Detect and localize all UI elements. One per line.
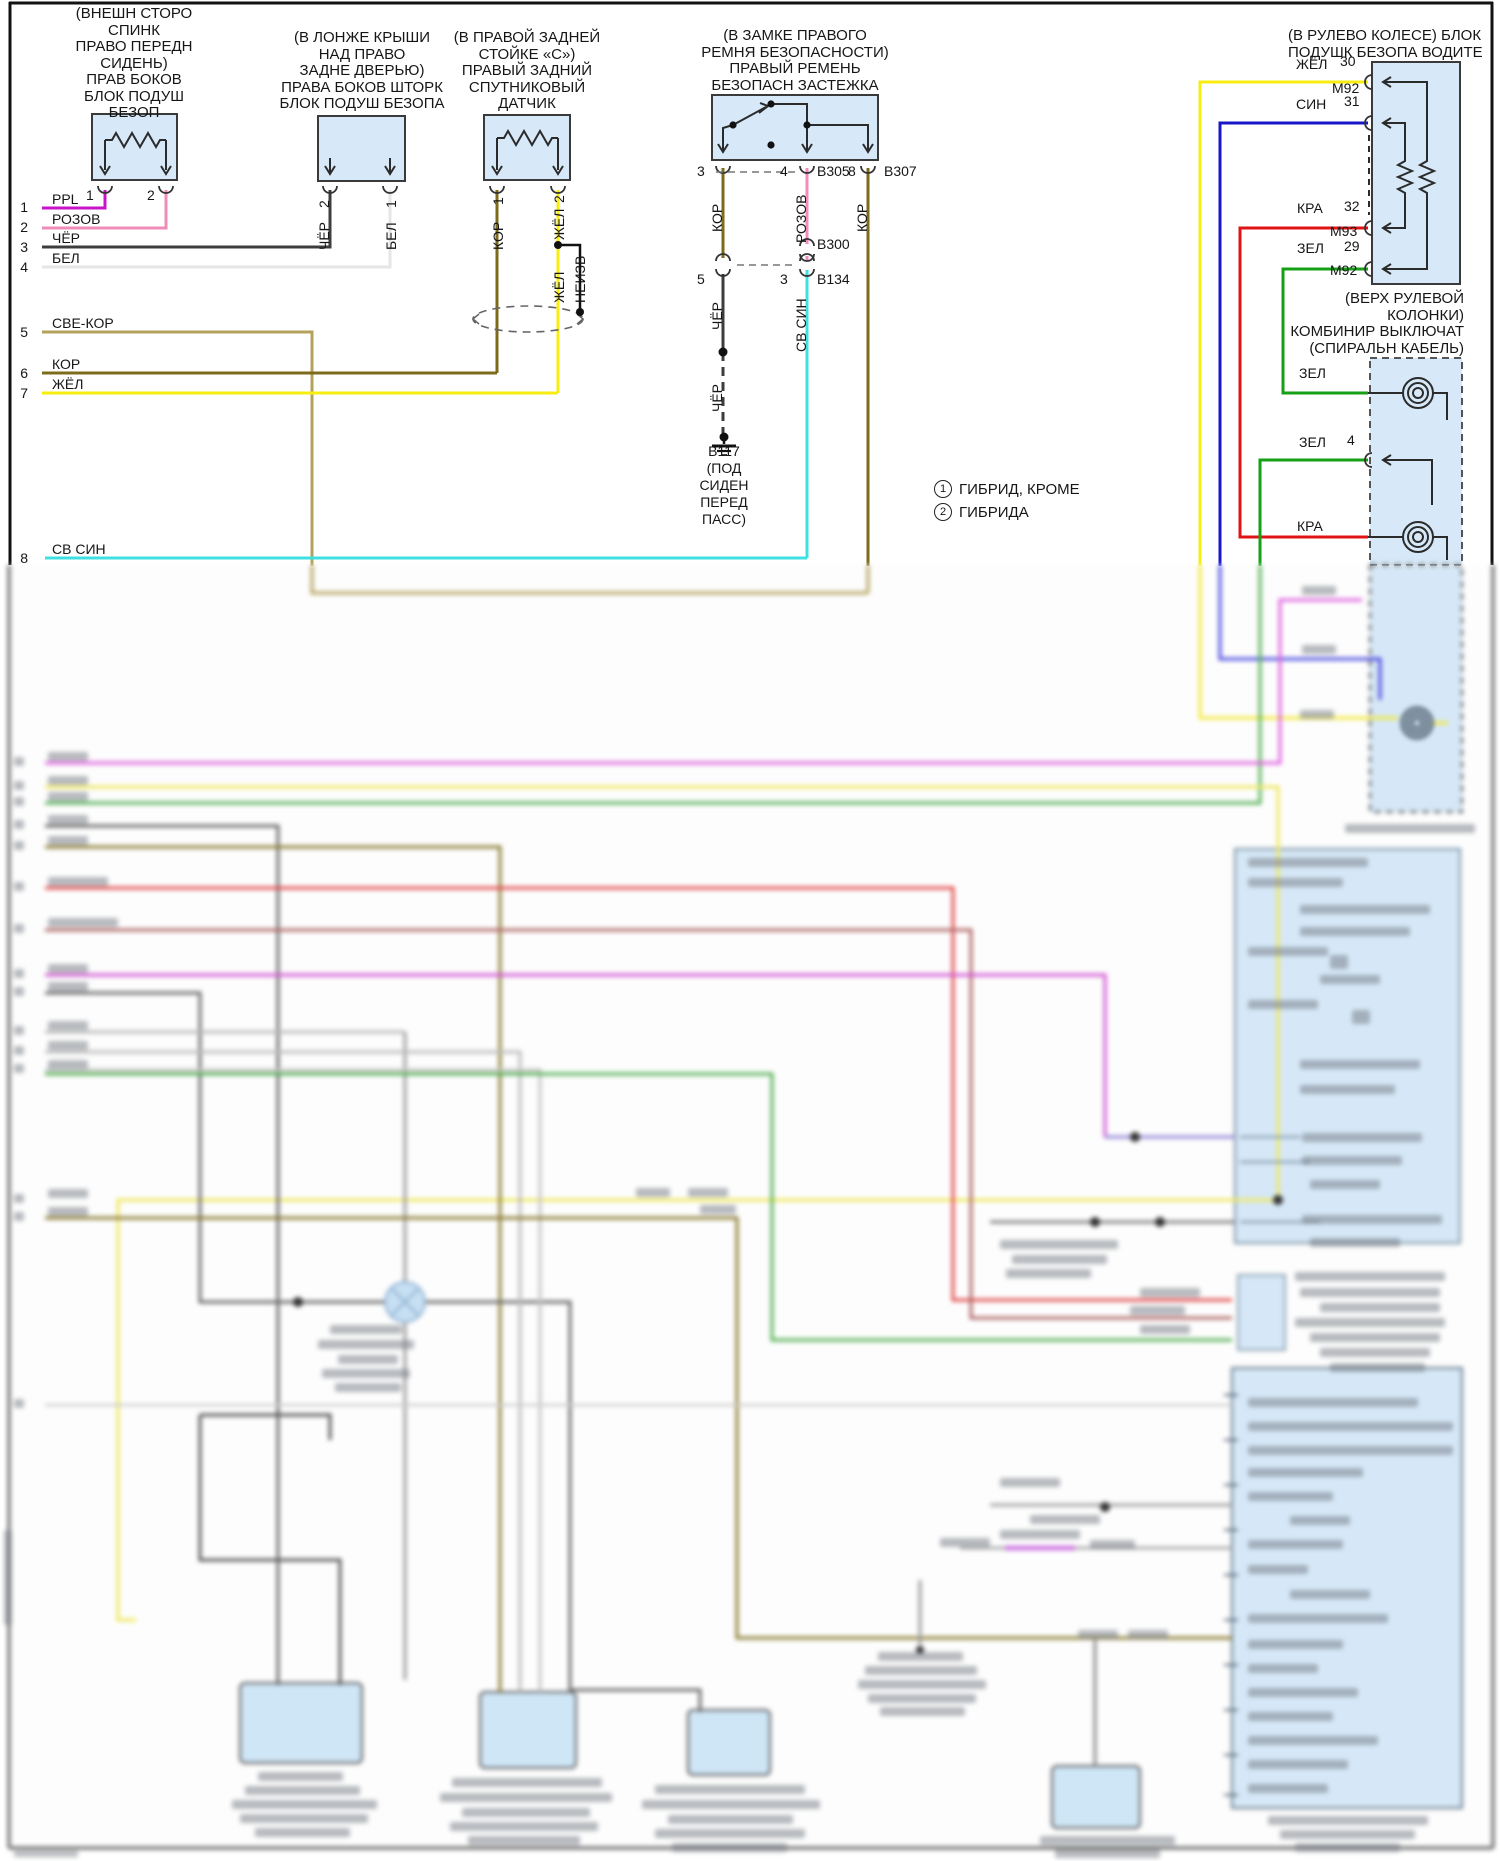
blurred-text-blob <box>1248 1688 1358 1697</box>
blurred-text-blob <box>700 1205 736 1214</box>
legend-item-1: 1 ГИБРИД, КРОМЕ <box>934 480 1080 498</box>
blurred-text-blob <box>14 987 24 996</box>
blurred-text-blob <box>245 1786 360 1795</box>
connector-label: M93 <box>1330 223 1357 239</box>
wire-brown-6 <box>42 190 497 373</box>
blurred-text-blob <box>1248 1614 1388 1623</box>
blurred-text-blob <box>1290 1516 1350 1525</box>
legend-item-2: 2 ГИБРИДА <box>934 503 1029 521</box>
blurred-text-blob <box>878 1652 963 1661</box>
blurred-text-blob <box>462 1808 590 1817</box>
blurred-text-blob <box>1248 1760 1348 1769</box>
blurred-text-blob <box>48 918 118 927</box>
blurred-text-blob <box>1248 1784 1328 1793</box>
wire-label: РОЗОВ <box>52 211 100 227</box>
blurred-text-blob <box>14 757 24 766</box>
blurred-text-blob <box>880 1707 965 1716</box>
wire-color-label: ЧЁР <box>709 302 725 330</box>
wire-number: 7 <box>10 385 28 401</box>
blurred-text-blob <box>14 882 24 891</box>
blurred-text-blob <box>48 982 88 991</box>
blurred-text-blob <box>1330 955 1348 969</box>
blurred-text-blob <box>1078 1630 1118 1639</box>
blurred-text-blob <box>338 1355 398 1364</box>
blurred-text-blob <box>1320 1348 1430 1357</box>
blurred-text-blob <box>668 1815 793 1824</box>
blurred-text-blob <box>322 1369 410 1378</box>
wire-color-label: ЗЕЛ <box>1299 434 1326 450</box>
pass-through-grommet <box>473 306 583 332</box>
wire-color-label: СВ СИН <box>793 298 809 352</box>
blurred-text-blob <box>1012 1255 1107 1264</box>
wire-color-label: НЕИЗВ <box>572 256 588 303</box>
wire-color-label: ЗЕЛ <box>1299 365 1326 381</box>
blurred-text-blob <box>48 815 88 824</box>
pin-label: 2 <box>147 187 155 203</box>
wire-label: БЕЛ <box>52 250 80 266</box>
wire-label: КОР <box>52 356 80 372</box>
blurred-text-blob <box>48 1041 88 1050</box>
wire-green-4 <box>1260 460 1368 566</box>
blurred-text-blob <box>1320 975 1380 984</box>
blurred-text-blob <box>440 1793 612 1802</box>
blurred-text-blob <box>940 1538 990 1547</box>
blurred-text-blob <box>48 1189 88 1198</box>
blurred-text-blob <box>1248 878 1343 887</box>
blurred-text-blob <box>14 924 24 933</box>
wire-label: PPL <box>52 191 78 207</box>
blurred-text-blob <box>14 797 24 806</box>
buckle-title: (В ЗАМКЕ ПРАВОГОРЕМНЯ БЕЗОПАСНОСТИ)ПРАВЫ… <box>695 28 895 94</box>
blurred-text-blob <box>1000 1478 1060 1487</box>
blurred-text-blob <box>1300 927 1410 936</box>
blurred-text-blob <box>1248 1422 1453 1431</box>
blurred-text-blob <box>1310 1238 1400 1247</box>
blurred-text-blob <box>655 1785 805 1794</box>
pin-label: 2 <box>316 200 332 208</box>
blurred-text-blob <box>1345 824 1475 833</box>
blurred-text-blob <box>1030 1515 1100 1524</box>
blurred-text-blob <box>1248 1736 1378 1745</box>
pin-label: 5 <box>697 271 705 287</box>
blurred-text-blob <box>240 1814 368 1823</box>
blurred-text-blob <box>1295 1272 1445 1281</box>
legend-text: ГИБРИД, КРОМЕ <box>959 481 1080 498</box>
wiring-diagram-page: (ВНЕШН СТОРОСПИНКПРАВО ПЕРЕДНСИДЕНЬ)ПРАВ… <box>0 0 1500 1861</box>
blurred-text-blob <box>688 1188 728 1197</box>
pin-label: 32 <box>1344 198 1360 214</box>
pin-label: 4 <box>780 163 788 179</box>
blurred-text-blob <box>255 1828 350 1837</box>
pin-label: 29 <box>1344 238 1360 254</box>
connector-label: B305 <box>817 163 850 179</box>
blurred-text-blob <box>452 1778 602 1787</box>
blurred-text-blob <box>868 1694 976 1703</box>
blurred-text-blob <box>14 1212 24 1221</box>
pin-label: 1 <box>86 187 94 203</box>
wire-number: 6 <box>10 365 28 381</box>
circled-number-icon: 2 <box>934 503 952 521</box>
blurred-text-blob <box>1248 1398 1418 1407</box>
wire-number: 1 <box>10 199 28 215</box>
blurred-text-blob <box>858 1680 986 1689</box>
wire-label: ЧЁР <box>52 230 80 246</box>
blurred-text-blob <box>1302 645 1336 654</box>
driver-airbag-box <box>1372 62 1460 284</box>
blurred-text-blob <box>1302 586 1336 595</box>
blurred-text-blob <box>1000 1240 1118 1249</box>
blurred-text-blob <box>1302 1133 1422 1142</box>
wire-color-label: КРА <box>1297 200 1323 216</box>
blurred-text-blob <box>14 1026 24 1035</box>
blurred-text-blob <box>14 841 24 850</box>
blurred-text-blob <box>1248 858 1368 867</box>
blurred-text-blob <box>48 752 88 761</box>
blurred-text-blob <box>1130 1306 1185 1315</box>
blurred-text-blob <box>318 1340 414 1349</box>
blurred-text-blob <box>1248 1492 1333 1501</box>
blurred-text-blob <box>1006 1269 1091 1278</box>
blurred-text-blob <box>232 1800 377 1809</box>
blurred-text-blob <box>258 1772 343 1781</box>
wire-color-label: ЧЁР <box>709 384 725 412</box>
blurred-text-blob <box>1330 1363 1425 1372</box>
ground-connector-label: B117(ПОДСИДЕНПЕРЕДПАСС) <box>674 443 774 528</box>
blurred-text-blob <box>1248 1664 1318 1673</box>
connector-label: B300 <box>817 236 850 252</box>
wire-label: СВЕ-КОР <box>52 315 114 331</box>
blurred-text-blob <box>1300 1288 1440 1297</box>
blurred-text-blob <box>1248 1000 1318 1009</box>
pin-label: 8 <box>848 163 856 179</box>
blurred-text-blob <box>1302 1215 1442 1224</box>
wire-color-label: ЧЁР <box>316 222 332 250</box>
blurred-text-blob <box>14 820 24 829</box>
pin-label: 30 <box>1340 53 1356 69</box>
blurred-text-blob <box>1055 1849 1160 1858</box>
wire-color-label: ЖЁЛ <box>551 272 567 303</box>
wire-number: 3 <box>10 239 28 255</box>
blurred-text-blob <box>655 1829 805 1838</box>
wire-number: 5 <box>10 324 28 340</box>
blurred-text-blob <box>1300 1085 1395 1094</box>
blurred-text-blob <box>14 1194 24 1203</box>
wire-yellow-7 <box>42 190 558 393</box>
wire-label: СВ СИН <box>52 541 106 557</box>
blurred-text-blob <box>4 1530 12 1625</box>
blurred-text-blob <box>48 877 108 886</box>
blurred-text-blob <box>1248 1712 1333 1721</box>
pin-label: 1 <box>383 200 399 208</box>
blurred-text-blob <box>1310 1333 1440 1342</box>
blurred-text-blob <box>1248 1540 1343 1549</box>
connector-label: B307 <box>884 163 917 179</box>
blurred-text-blob <box>1300 905 1430 914</box>
wire-color-label: БЕЛ <box>383 222 399 250</box>
blurred-text-blob <box>14 1064 24 1073</box>
blurred-text-blob <box>1310 1180 1380 1189</box>
blurred-text-blob <box>330 1325 402 1334</box>
blurred-text-blob <box>672 1843 787 1852</box>
blurred-text-blob <box>1300 1060 1420 1069</box>
blurred-text-blob <box>48 836 88 845</box>
blurred-text-blob <box>1248 1468 1363 1477</box>
pin-label: 3 <box>697 163 705 179</box>
wire-number: 8 <box>10 550 28 566</box>
pin-label: 1 <box>490 197 506 205</box>
wire-label: ЖЁЛ <box>52 376 83 392</box>
connector-label: M92 <box>1330 262 1357 278</box>
blurred-text-blob <box>335 1383 401 1392</box>
blurred-text-blob <box>48 792 88 801</box>
blurred-text-blob <box>1040 1836 1175 1845</box>
blurred-text-blob <box>1248 1640 1343 1649</box>
blurred-text-blob <box>1302 1156 1402 1165</box>
blurred-text-blob <box>48 1207 88 1216</box>
blurred-text-blob <box>1090 1540 1135 1549</box>
blurred-text-blob <box>1248 1565 1308 1574</box>
pin-label: 31 <box>1344 93 1360 109</box>
blurred-text-blob <box>48 1021 88 1030</box>
blurred-text-blob <box>450 1822 598 1831</box>
wire-number: 2 <box>10 219 28 235</box>
blurred-text-blob <box>48 964 88 973</box>
wire-ltbrown <box>42 332 312 566</box>
blurred-text-blob <box>1295 1843 1400 1852</box>
wire-color-label: ЖЁЛ <box>551 209 567 240</box>
blurred-text-blob <box>1128 1630 1168 1639</box>
blurred-text-blob <box>14 781 24 790</box>
wire-color-label: КОР <box>709 204 725 232</box>
blurred-text-blob <box>14 969 24 978</box>
blurred-text-blob <box>14 1399 24 1408</box>
blurred-text-blob <box>1280 1830 1415 1839</box>
blurred-text-blob <box>1320 1303 1440 1312</box>
blurred-text-blob <box>642 1800 820 1809</box>
pin-label: 4 <box>1347 432 1355 448</box>
blurred-text-blob <box>1140 1288 1200 1297</box>
blurred-text-blob <box>1248 947 1328 956</box>
wire-color-label: РОЗОВ <box>793 195 809 243</box>
blurred-text-blob <box>1300 710 1334 719</box>
clockspring-title: (ВЕРХ РУЛЕВОЙКОЛОНКИ)КОМБИНИР ВЫКЛЮЧАТ(С… <box>1238 291 1464 357</box>
wire-color-label: СИН <box>1296 96 1326 112</box>
wire-color-label: КРА <box>1297 518 1323 534</box>
blurred-text-blob <box>468 1836 580 1845</box>
blurred-text-blob <box>1295 1318 1445 1327</box>
pin-label: 3 <box>780 271 788 287</box>
blurred-text-blob <box>48 1060 88 1069</box>
side-airbag-title: (ВНЕШН СТОРОСПИНКПРАВО ПЕРЕДНСИДЕНЬ)ПРАВ… <box>34 6 234 122</box>
blurred-text-blob <box>14 1046 24 1055</box>
connector-label: B134 <box>817 271 850 287</box>
blurred-text-blob <box>1140 1325 1190 1334</box>
blurred-text-blob <box>1290 1590 1370 1599</box>
legend-text: ГИБРИДА <box>959 504 1029 521</box>
pin-label: 2 <box>551 195 567 203</box>
wire-color-label: КОР <box>854 204 870 232</box>
blurred-text-blob <box>14 1851 78 1857</box>
blurred-text-blob <box>1000 1530 1080 1539</box>
blurred-text-blob <box>1352 1010 1370 1024</box>
blurred-text-blob <box>865 1666 977 1675</box>
blurred-lower-diagram <box>4 565 1493 1858</box>
blurred-text-blob <box>1268 1816 1428 1825</box>
blurred-text-blob <box>636 1188 670 1197</box>
circled-number-icon: 1 <box>934 480 952 498</box>
wire-color-label: ЗЕЛ <box>1297 240 1324 256</box>
wire-color-label: КОР <box>490 222 506 250</box>
diagram-canvas <box>0 0 1500 1861</box>
blurred-text-blob <box>1248 1446 1453 1455</box>
wire-color-label: ЖЁЛ <box>1296 56 1327 72</box>
wire-number: 4 <box>10 259 28 275</box>
satellite-sensor-title: (В ПРАВОЙ ЗАДНЕЙСТОЙКЕ «С»)ПРАВЫЙ ЗАДНИЙ… <box>427 30 627 113</box>
blurred-text-blob <box>48 776 88 785</box>
